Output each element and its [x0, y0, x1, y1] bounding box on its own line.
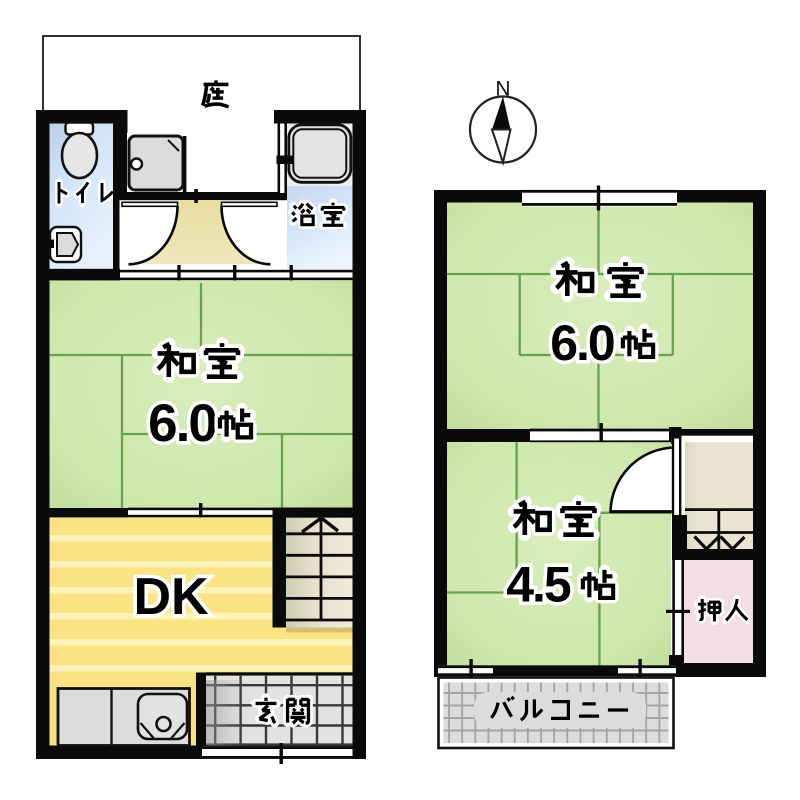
svg-text:6.0: 6.0	[148, 394, 216, 453]
svg-text:DK: DK	[133, 568, 209, 626]
svg-text:6.0: 6.0	[550, 315, 614, 371]
svg-text:4.5: 4.5	[506, 557, 571, 613]
